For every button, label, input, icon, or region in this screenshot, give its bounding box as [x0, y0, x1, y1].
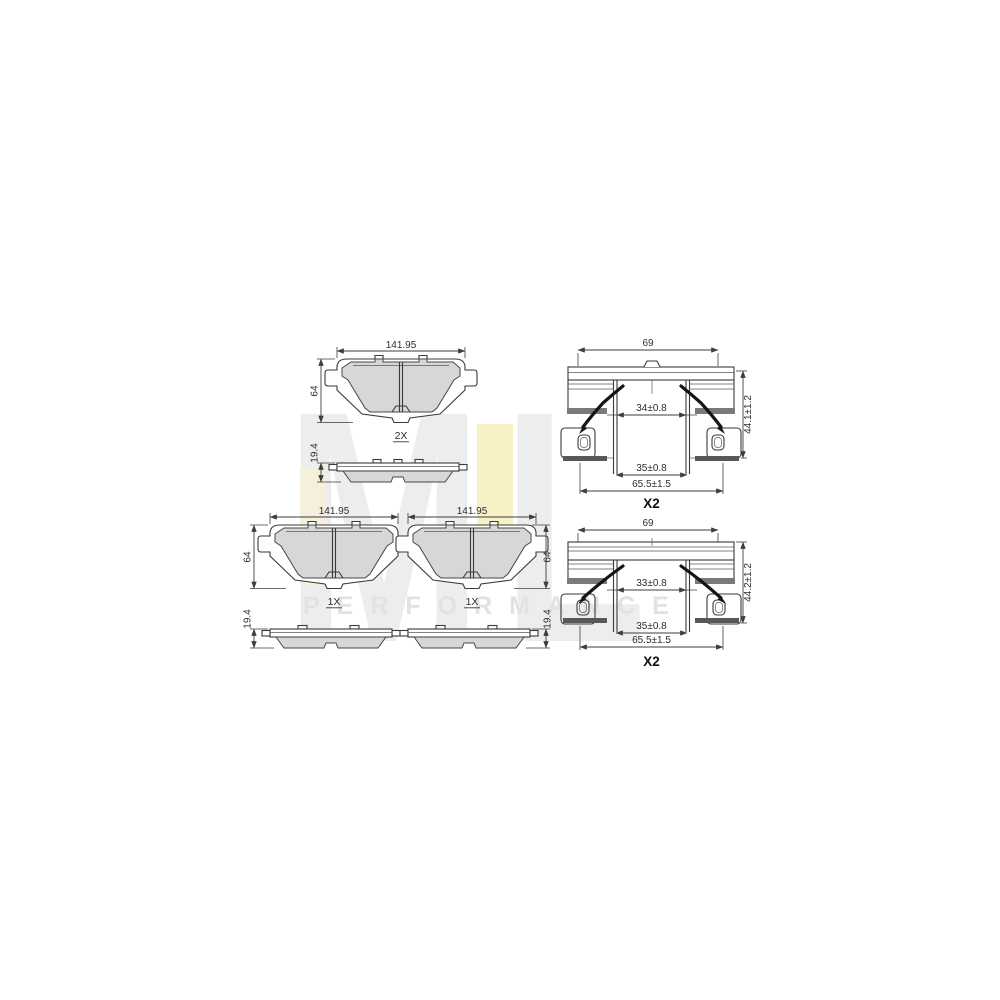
spring-wire-right [681, 566, 726, 604]
kit-width-dimension [578, 530, 718, 542]
quantity-label: X2 [643, 654, 660, 669]
quantity-label: 1X [466, 596, 479, 608]
kit-height-label: 44.2±1.2 [743, 563, 754, 602]
kit-width-label: 69 [642, 518, 654, 529]
height-dimension-label: 64 [543, 551, 554, 563]
technical-drawing-canvas: ML PERFORMANCE [0, 0, 1000, 1000]
kit-lower-inner-width-label: 35±0.8 [636, 621, 667, 632]
height-dimension-label: 64 [243, 551, 254, 563]
kit-foot-left [561, 428, 595, 458]
kit-clip-inner-width-label: 33±0.8 [636, 578, 667, 589]
width-dimension-label: 141.95 [457, 506, 488, 517]
quantity-label: 2X [395, 430, 408, 442]
thickness-dimension-label: 19.4 [543, 609, 554, 629]
kit-width-label: 69 [642, 338, 654, 349]
height-dimension-label: 64 [310, 385, 321, 397]
thickness-dimension-label: 19.4 [310, 443, 321, 463]
quantity-label: X2 [643, 496, 660, 511]
kit-lower-inner-width-label: 35±0.8 [636, 463, 667, 474]
quantity-label: 1X [328, 596, 341, 608]
brake-pad-drawing-right-1x: 141.95 64 19.4 1X [384, 505, 554, 655]
fitting-kit-drawing-top: 69 34±0.8 35±0.8 65.5±1.5 44.1±1.2 X2 [555, 336, 765, 514]
width-dimension-label: 141.95 [319, 506, 350, 517]
brake-pad-drawing-2x: 141.95 64 19.4 2X [313, 339, 483, 489]
width-dimension-label: 141.95 [386, 340, 417, 351]
kit-body [561, 361, 741, 474]
fitting-kit-drawing-bottom: 69 33±0.8 35±0.8 65.5±1.5 44.2±1.2 X2 [555, 512, 765, 676]
kit-base-width-label: 65.5±1.5 [632, 635, 671, 646]
spring-wire-left [578, 566, 623, 604]
kit-height-label: 44.1±1.2 [743, 395, 754, 434]
kit-clip-inner-width-label: 34±0.8 [636, 403, 667, 414]
kit-base-width-label: 65.5±1.5 [632, 479, 671, 490]
thickness-dimension-label: 19.4 [243, 609, 254, 629]
